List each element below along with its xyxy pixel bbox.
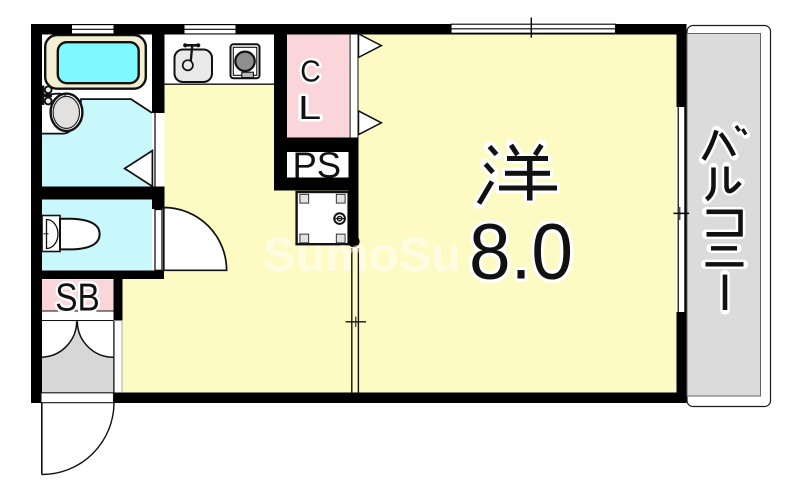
svg-text:L: L [298,89,321,126]
svg-text:SumoSu: SumoSu [263,229,461,282]
svg-text:SB: SB [55,276,100,319]
svg-text:PS: PS [292,144,341,185]
svg-text:8.0: 8.0 [469,207,573,295]
svg-text:C: C [300,54,321,89]
